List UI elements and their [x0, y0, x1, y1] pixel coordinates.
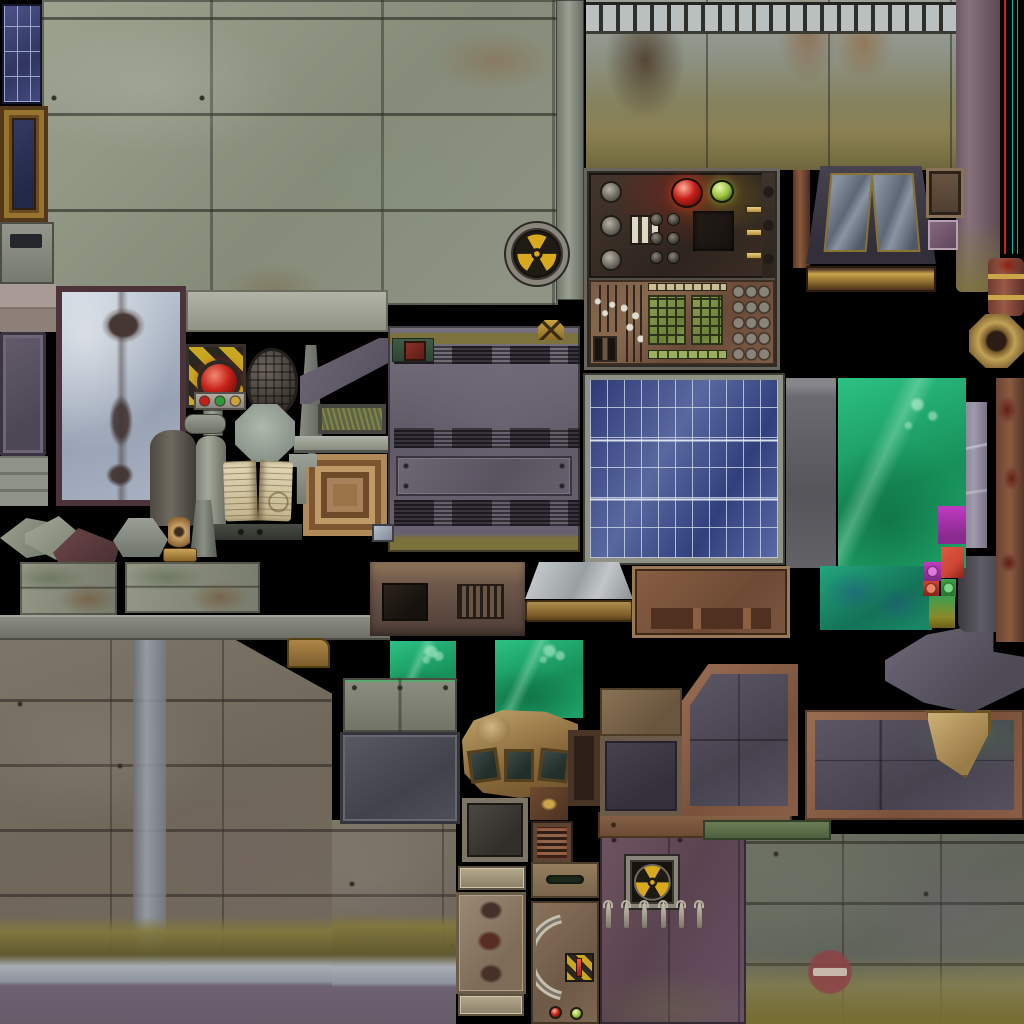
hanging-hook — [679, 902, 684, 928]
double-slot — [593, 336, 617, 361]
lavender-strip — [963, 402, 987, 548]
small-knob — [667, 213, 680, 226]
amber-indicator — [745, 205, 763, 214]
hanging-hook — [642, 902, 647, 928]
stone-octagon — [235, 404, 295, 462]
swatch-green-small — [941, 579, 956, 597]
slider-bank — [593, 285, 617, 332]
red-indicator-lamp — [549, 1006, 562, 1019]
small-knob — [667, 251, 680, 264]
window-frame — [806, 166, 936, 264]
lever-arc-handle — [536, 913, 566, 1002]
control-panel-upper — [589, 173, 775, 278]
bottom-left-wall-ext — [332, 820, 456, 1024]
neon-light-strips — [1000, 0, 1024, 254]
console-window — [467, 747, 502, 784]
small-knob — [667, 232, 680, 245]
gold-pipe-elbow — [287, 638, 330, 668]
key-strip — [648, 283, 726, 291]
amber-indicator — [745, 228, 763, 237]
slime-square-b — [495, 640, 583, 718]
swatch-red — [941, 547, 964, 578]
bottom-left-wall — [0, 640, 332, 1024]
lever-panel — [531, 862, 599, 1024]
console-window — [504, 749, 534, 782]
metal-tray — [525, 562, 633, 622]
socket-column — [762, 173, 775, 278]
picture-frame — [0, 106, 48, 222]
small-brown-panel — [926, 168, 964, 218]
dark-slab — [786, 378, 836, 568]
dark-pillar — [150, 430, 196, 526]
door-radiation-fan — [626, 856, 678, 908]
small-brown-plate — [600, 688, 682, 736]
block-with-slot — [0, 222, 54, 284]
console-window — [537, 747, 570, 783]
red-box-pedestal — [392, 338, 434, 362]
olive-gradient-strip — [929, 596, 955, 628]
riveted-access-panel — [396, 456, 572, 496]
horizontal-pipe — [184, 414, 226, 434]
mauve-pillar — [956, 0, 1000, 292]
stone-block-wall — [42, 0, 558, 305]
mixer-section — [589, 280, 775, 365]
framed-plate — [462, 798, 528, 862]
stained-plates-left — [20, 562, 117, 615]
lever-main-plate — [531, 901, 599, 1024]
swatch-red-small — [923, 581, 939, 596]
green-bar — [703, 820, 831, 840]
vent-panel-brown — [632, 566, 790, 638]
control-panel — [584, 168, 780, 370]
glass-square — [372, 524, 394, 542]
dark-shelf — [208, 524, 302, 540]
pink-block-texture — [0, 284, 56, 332]
small-framed-panel — [600, 736, 682, 816]
hazard-switch-box — [565, 953, 594, 983]
red-dome-lamp — [671, 178, 703, 208]
fan-square-frame — [626, 856, 678, 908]
amber-indicator — [745, 251, 763, 260]
hook-row — [606, 902, 702, 928]
red-vent-grille — [533, 823, 571, 862]
lever-slot-plate — [531, 862, 599, 898]
swatch-magenta-small — [924, 562, 941, 581]
small-knob — [650, 251, 663, 264]
purple-square — [928, 220, 958, 250]
stone-ledge — [294, 436, 388, 453]
radiation-trefoil-icon — [514, 231, 560, 277]
fan-ring — [506, 223, 568, 285]
circle-emblem — [476, 715, 510, 745]
window-pane-left — [823, 173, 873, 252]
tray-surface — [525, 562, 633, 599]
rotary-knob — [600, 215, 622, 237]
book-page-right — [258, 460, 293, 521]
window-sill — [806, 266, 936, 292]
rust-pillar-right — [996, 378, 1024, 642]
curved-console — [462, 710, 578, 798]
swatch-magenta — [938, 506, 966, 544]
hanging-hook — [661, 902, 666, 928]
stained-plates-right — [125, 562, 260, 613]
large-right-panel — [805, 710, 1024, 820]
chamfered-panel — [680, 664, 798, 816]
texture-atlas — [0, 0, 1024, 1024]
hanging-hook — [606, 902, 611, 928]
gold-bar — [163, 548, 197, 562]
hanging-hook — [624, 902, 629, 928]
burn-blob-plate — [456, 892, 526, 994]
long-metal-bar — [0, 615, 390, 640]
round-button-grid — [732, 284, 771, 362]
factory-window — [806, 166, 936, 292]
dark-plate — [340, 732, 460, 824]
rust-gold-square — [530, 787, 568, 820]
toxic-slime-teal — [820, 566, 932, 630]
label-plate-bottom — [458, 994, 524, 1016]
green-indicator-lamp — [570, 1007, 583, 1020]
upper-grass-wall — [586, 0, 956, 170]
green-dome-lamp — [710, 180, 734, 203]
bottom-right-wall — [746, 834, 1024, 1024]
solar-panel — [585, 375, 783, 563]
label-plate-top — [458, 866, 526, 890]
green-key-grid — [691, 295, 723, 344]
fader-bank — [621, 285, 643, 361]
hanging-hook — [697, 902, 702, 928]
tan-starburst — [168, 517, 190, 550]
green-key-grid — [648, 295, 685, 344]
mossy-plate — [343, 678, 457, 732]
indicator-led-bar — [194, 392, 246, 410]
purple-wall-panel — [0, 332, 46, 456]
hex-pipe-end — [969, 314, 1024, 368]
light-concrete-beam — [186, 290, 388, 332]
tray-front-bar — [525, 600, 633, 622]
rotary-knob — [600, 181, 622, 203]
solar-cell-strip — [2, 4, 42, 104]
no-entry-sign — [808, 950, 852, 994]
metal-strip-stack — [0, 456, 48, 506]
window-pane-right — [870, 173, 920, 252]
grass-planter-frame — [318, 404, 386, 434]
dark-frame-small — [568, 730, 600, 806]
rotary-knob — [600, 249, 622, 271]
book-page-left — [223, 460, 258, 521]
small-knob — [650, 232, 663, 245]
red-pipe-gold-rings — [988, 258, 1024, 316]
radiation-trefoil-icon — [633, 863, 672, 902]
segment-row — [648, 350, 726, 359]
brown-console — [370, 562, 525, 636]
wall-radiation-fan — [506, 223, 568, 285]
dark-readout-screen — [693, 211, 734, 251]
small-knob — [650, 213, 663, 226]
radiation-plaque — [538, 320, 564, 340]
open-book — [224, 458, 292, 526]
